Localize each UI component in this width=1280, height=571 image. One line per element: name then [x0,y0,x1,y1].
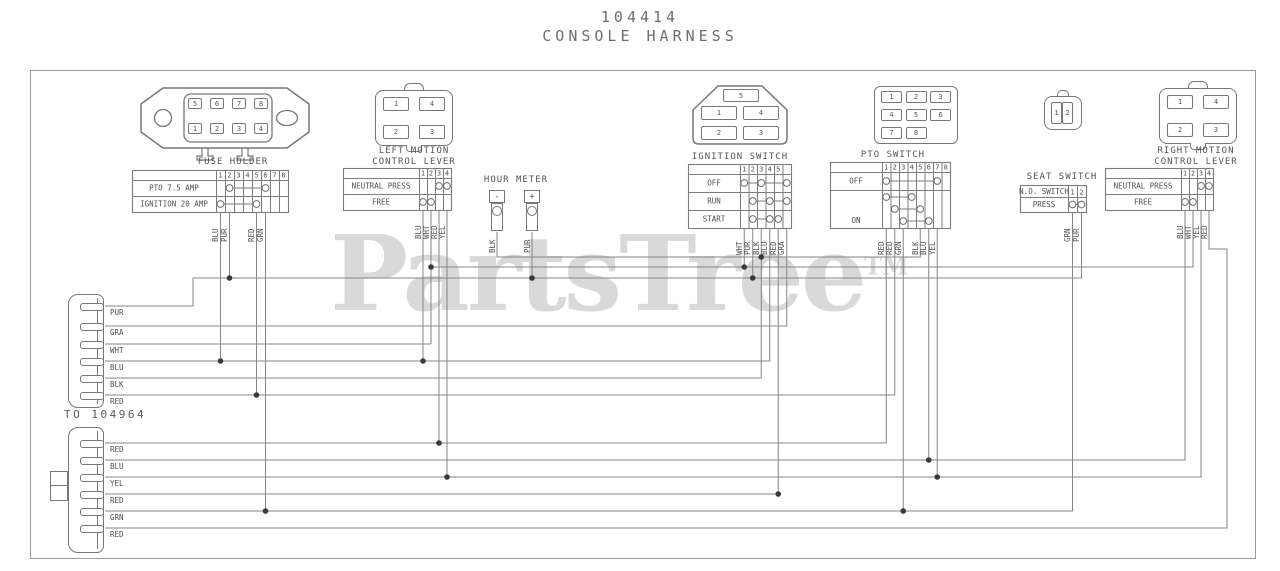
svg-text:PTO 7.5 AMP: PTO 7.5 AMP [149,184,199,193]
connector-pin-2: 2 [1062,102,1073,124]
svg-text:3: 3 [1199,170,1203,178]
connector-pin-2: 2 [383,125,409,139]
ignition-pin-5: 5 [723,89,759,102]
wire-color-label: PUR [110,308,124,317]
svg-text:N.O. SWITCH: N.O. SWITCH [1019,187,1069,196]
svg-text:OFF: OFF [707,179,721,188]
connector-pin-6: 6 [930,109,951,121]
wire-color-label: YEL [928,241,937,255]
connector-pin-1: 1 [1051,102,1062,124]
wire-junction-dot [750,275,756,281]
svg-text:4: 4 [768,166,772,174]
drawing-name: CONSOLE HARNESS [0,27,1280,46]
wire-junction-dot [775,491,781,497]
wire-color-label: RED [110,397,124,406]
component-title: IGNITION SWITCH [692,152,788,163]
svg-text:2: 2 [429,170,433,178]
wire-color-label: BLU [110,462,124,471]
block-terminal [80,323,104,331]
connector-pin-1: 1 [383,97,409,111]
wire-junction-dot [934,474,940,480]
block-terminal [80,341,104,349]
svg-text:2: 2 [1191,170,1195,178]
wire-color-label: PUR [220,228,229,242]
pin-table-seat-switch: N.O. SWITCH12PRESS [1020,185,1086,212]
connector-pin-2: 2 [701,126,737,140]
pin-row: 14 [383,97,445,111]
wire-junction-dot [254,392,260,398]
svg-text:7: 7 [935,164,939,172]
connector-pin-2: 2 [210,123,224,134]
wire-color-label: RED [1200,225,1209,239]
pin-row: 23 [383,125,445,139]
wire-color-label: GRA [110,328,124,337]
wire-color-label: WHT [110,346,124,355]
component-title: FUSE HOLDER [198,157,269,168]
wire-junction-dot [444,474,450,480]
wire-color-label: YEL [438,225,447,239]
pin-table-pto-switch: 12345678OFFON [830,162,950,228]
component-title: RIGHT MOTIONCONTROL LEVER [1154,146,1237,168]
part-number: 104414 [0,8,1280,27]
connector-pin-3: 3 [743,126,779,140]
wire-color-label: GRN [894,241,903,255]
wire-color-label: RED [110,496,124,505]
svg-text:1: 1 [742,166,746,174]
block-terminal [80,474,104,482]
wire-color-label: BLU [760,241,769,255]
block-terminal [80,457,104,465]
drawing-title: 104414 CONSOLE HARNESS [0,8,1280,46]
block-terminal [80,491,104,499]
block-terminal [80,508,104,516]
pin-row: 12 [1051,102,1073,124]
component-title: HOUR METER [484,175,548,186]
svg-text:6: 6 [263,172,267,180]
connector-pin-4: 4 [743,106,779,120]
svg-text:8: 8 [281,172,285,180]
svg-text:OFF: OFF [849,177,863,186]
wire-color-label: PUR [1072,228,1081,242]
wire-color-label: PUR [523,239,532,253]
minus-sign: - [489,190,505,203]
block-terminal [80,303,104,311]
wiring-layer [0,0,1280,571]
pin-table-fuse-holder: 12345678PTO 7.5 AMPIGNITION 20 AMP [132,170,288,212]
wire [497,228,920,257]
svg-text:7: 7 [272,172,276,180]
svg-text:NEUTRAL PRESS: NEUTRAL PRESS [1114,182,1173,191]
wire-color-label: RED [110,530,124,539]
wiring-diagram-page: 104414 CONSOLE HARNESS PartsTreeTM 56781… [0,0,1280,571]
svg-text:2: 2 [893,164,897,172]
svg-text:8: 8 [944,164,948,172]
svg-text:4: 4 [445,170,449,178]
wire [105,228,787,326]
svg-text:ON: ON [851,216,860,225]
pto-switch-pins: 12345678 [881,91,953,139]
svg-text:RUN: RUN [707,197,721,206]
wire-junction-dot [428,264,434,270]
hour-meter-plus-terminal: + [524,190,540,231]
wire-junction-dot [263,508,269,514]
block-terminal [80,440,104,448]
connector-pin-4: 4 [1203,95,1229,109]
wire-color-label: YEL [110,479,124,488]
wire-junction-dot [436,440,442,446]
wire [105,210,1185,460]
svg-text:START: START [703,215,726,224]
terminal-ring-icon [492,206,502,216]
svg-text:3: 3 [437,170,441,178]
svg-text:1: 1 [1070,189,1074,197]
component-title: PTO SWITCH [861,150,925,161]
wire [105,210,1227,528]
wire-color-label: BLU [110,363,124,372]
svg-text:PRESS: PRESS [1033,200,1056,209]
wire-junction-dot [420,358,426,364]
connector-pin-3: 3 [232,123,246,134]
connector-pin-2: 2 [1167,123,1193,137]
svg-text:IGNITION 20 AMP: IGNITION 20 AMP [140,200,208,209]
pin-table-ignition-switch: 12345OFFRUNSTART [688,164,791,228]
wire-color-label: GRN [1063,228,1072,242]
component-title: SEAT SWITCH [1027,172,1098,183]
block-terminal [80,358,104,366]
right-lever-pins: 1423 [1167,95,1229,137]
svg-text:FREE: FREE [1134,198,1153,207]
connector-pin-7: 7 [232,98,246,109]
pin-table-right-motion-lever: 1234NEUTRAL PRESSFREE [1105,168,1213,210]
wire [105,228,770,361]
pin-row: 123 [881,91,953,103]
to-harness-reference: TO 104964 [64,408,146,421]
left-lever-pins: 1423 [383,97,445,139]
wire-color-label: BLU [919,241,928,255]
svg-text:3: 3 [236,172,240,180]
connector-pin-3: 3 [1203,123,1229,137]
connector-pin-1: 1 [188,123,202,134]
connector-pin-2: 2 [906,91,927,103]
block-terminal [80,392,104,400]
svg-text:2: 2 [1079,189,1083,197]
connector-pin-5: 5 [188,98,202,109]
pin-row: 14 [701,106,779,120]
ignition-pins: 1423 [701,106,779,140]
connector-pin-8: 8 [254,98,268,109]
svg-text:1: 1 [884,164,888,172]
block-terminal [80,375,104,383]
pin-row: 23 [1167,123,1229,137]
svg-text:1: 1 [218,172,222,180]
plus-sign: + [524,190,540,203]
wire-color-label: BLK [110,380,124,389]
svg-text:6: 6 [927,164,931,172]
connector-pin-1: 1 [881,91,902,103]
wire-color-label: RED [247,228,256,242]
svg-text:5: 5 [776,166,780,174]
wire-color-label: BLU [211,228,220,242]
connector-pin-1: 1 [1167,95,1193,109]
svg-text:4: 4 [1207,170,1211,178]
connector-pin-4: 4 [881,109,902,121]
svg-text:1: 1 [1183,170,1187,178]
connector-pin-5: 5 [906,109,927,121]
pin-row: 456 [881,109,953,121]
wire-color-label: BLK [488,239,497,253]
pin-row: 78 [881,127,953,139]
svg-text:3: 3 [901,164,905,172]
svg-text:FREE: FREE [372,198,391,207]
svg-text:5: 5 [918,164,922,172]
connector-pin-6: 6 [210,98,224,109]
svg-text:4: 4 [910,164,914,172]
terminal-ring-icon [527,206,537,216]
connector-pin-8: 8 [906,127,927,139]
pin-row: 1234 [188,123,268,134]
lower-connector-side-tab [50,471,68,501]
wire-junction-dot [227,275,233,281]
wire-color-label: GRN [256,228,265,242]
connector-pin-7: 7 [881,127,902,139]
pin-row: 14 [1167,95,1229,109]
connector-pin-4: 4 [254,123,268,134]
seat-switch-pins: 12 [1051,102,1077,124]
wire-junction-dot [926,457,932,463]
block-terminal [80,525,104,533]
wire-junction-dot [900,508,906,514]
hour-meter-minus-terminal: - [489,190,505,231]
fuse-holder-pins: 56781234 [188,98,268,134]
connector-pin-1: 1 [701,106,737,120]
svg-text:5: 5 [254,172,258,180]
wire-color-label: RED [885,241,894,255]
wire-junction-dot [529,275,535,281]
svg-text:NEUTRAL PRESS: NEUTRAL PRESS [352,182,411,191]
connector-pin-4: 4 [419,97,445,111]
component-title: LEFT MOTIONCONTROL LEVER [372,146,455,168]
connector-pin-3: 3 [419,125,445,139]
pin-row: 5678 [188,98,268,109]
svg-text:3: 3 [759,166,763,174]
wire-junction-dot [758,254,764,260]
pin-table-left-motion-lever: 1234NEUTRAL PRESSFREE [343,168,451,210]
wire-color-label: GRA [777,241,786,255]
pin-row: 23 [701,126,779,140]
svg-text:4: 4 [245,172,249,180]
wire-junction-dot [218,358,224,364]
svg-text:1: 1 [421,170,425,178]
wire-color-label: PUR [743,241,752,255]
connector-pin-3: 3 [930,91,951,103]
wire-color-label: GRN [110,513,124,522]
wire-junction-dot [741,264,747,270]
wire [105,228,886,443]
svg-text:2: 2 [227,172,231,180]
svg-text:2: 2 [751,166,755,174]
wire-color-label: RED [110,445,124,454]
